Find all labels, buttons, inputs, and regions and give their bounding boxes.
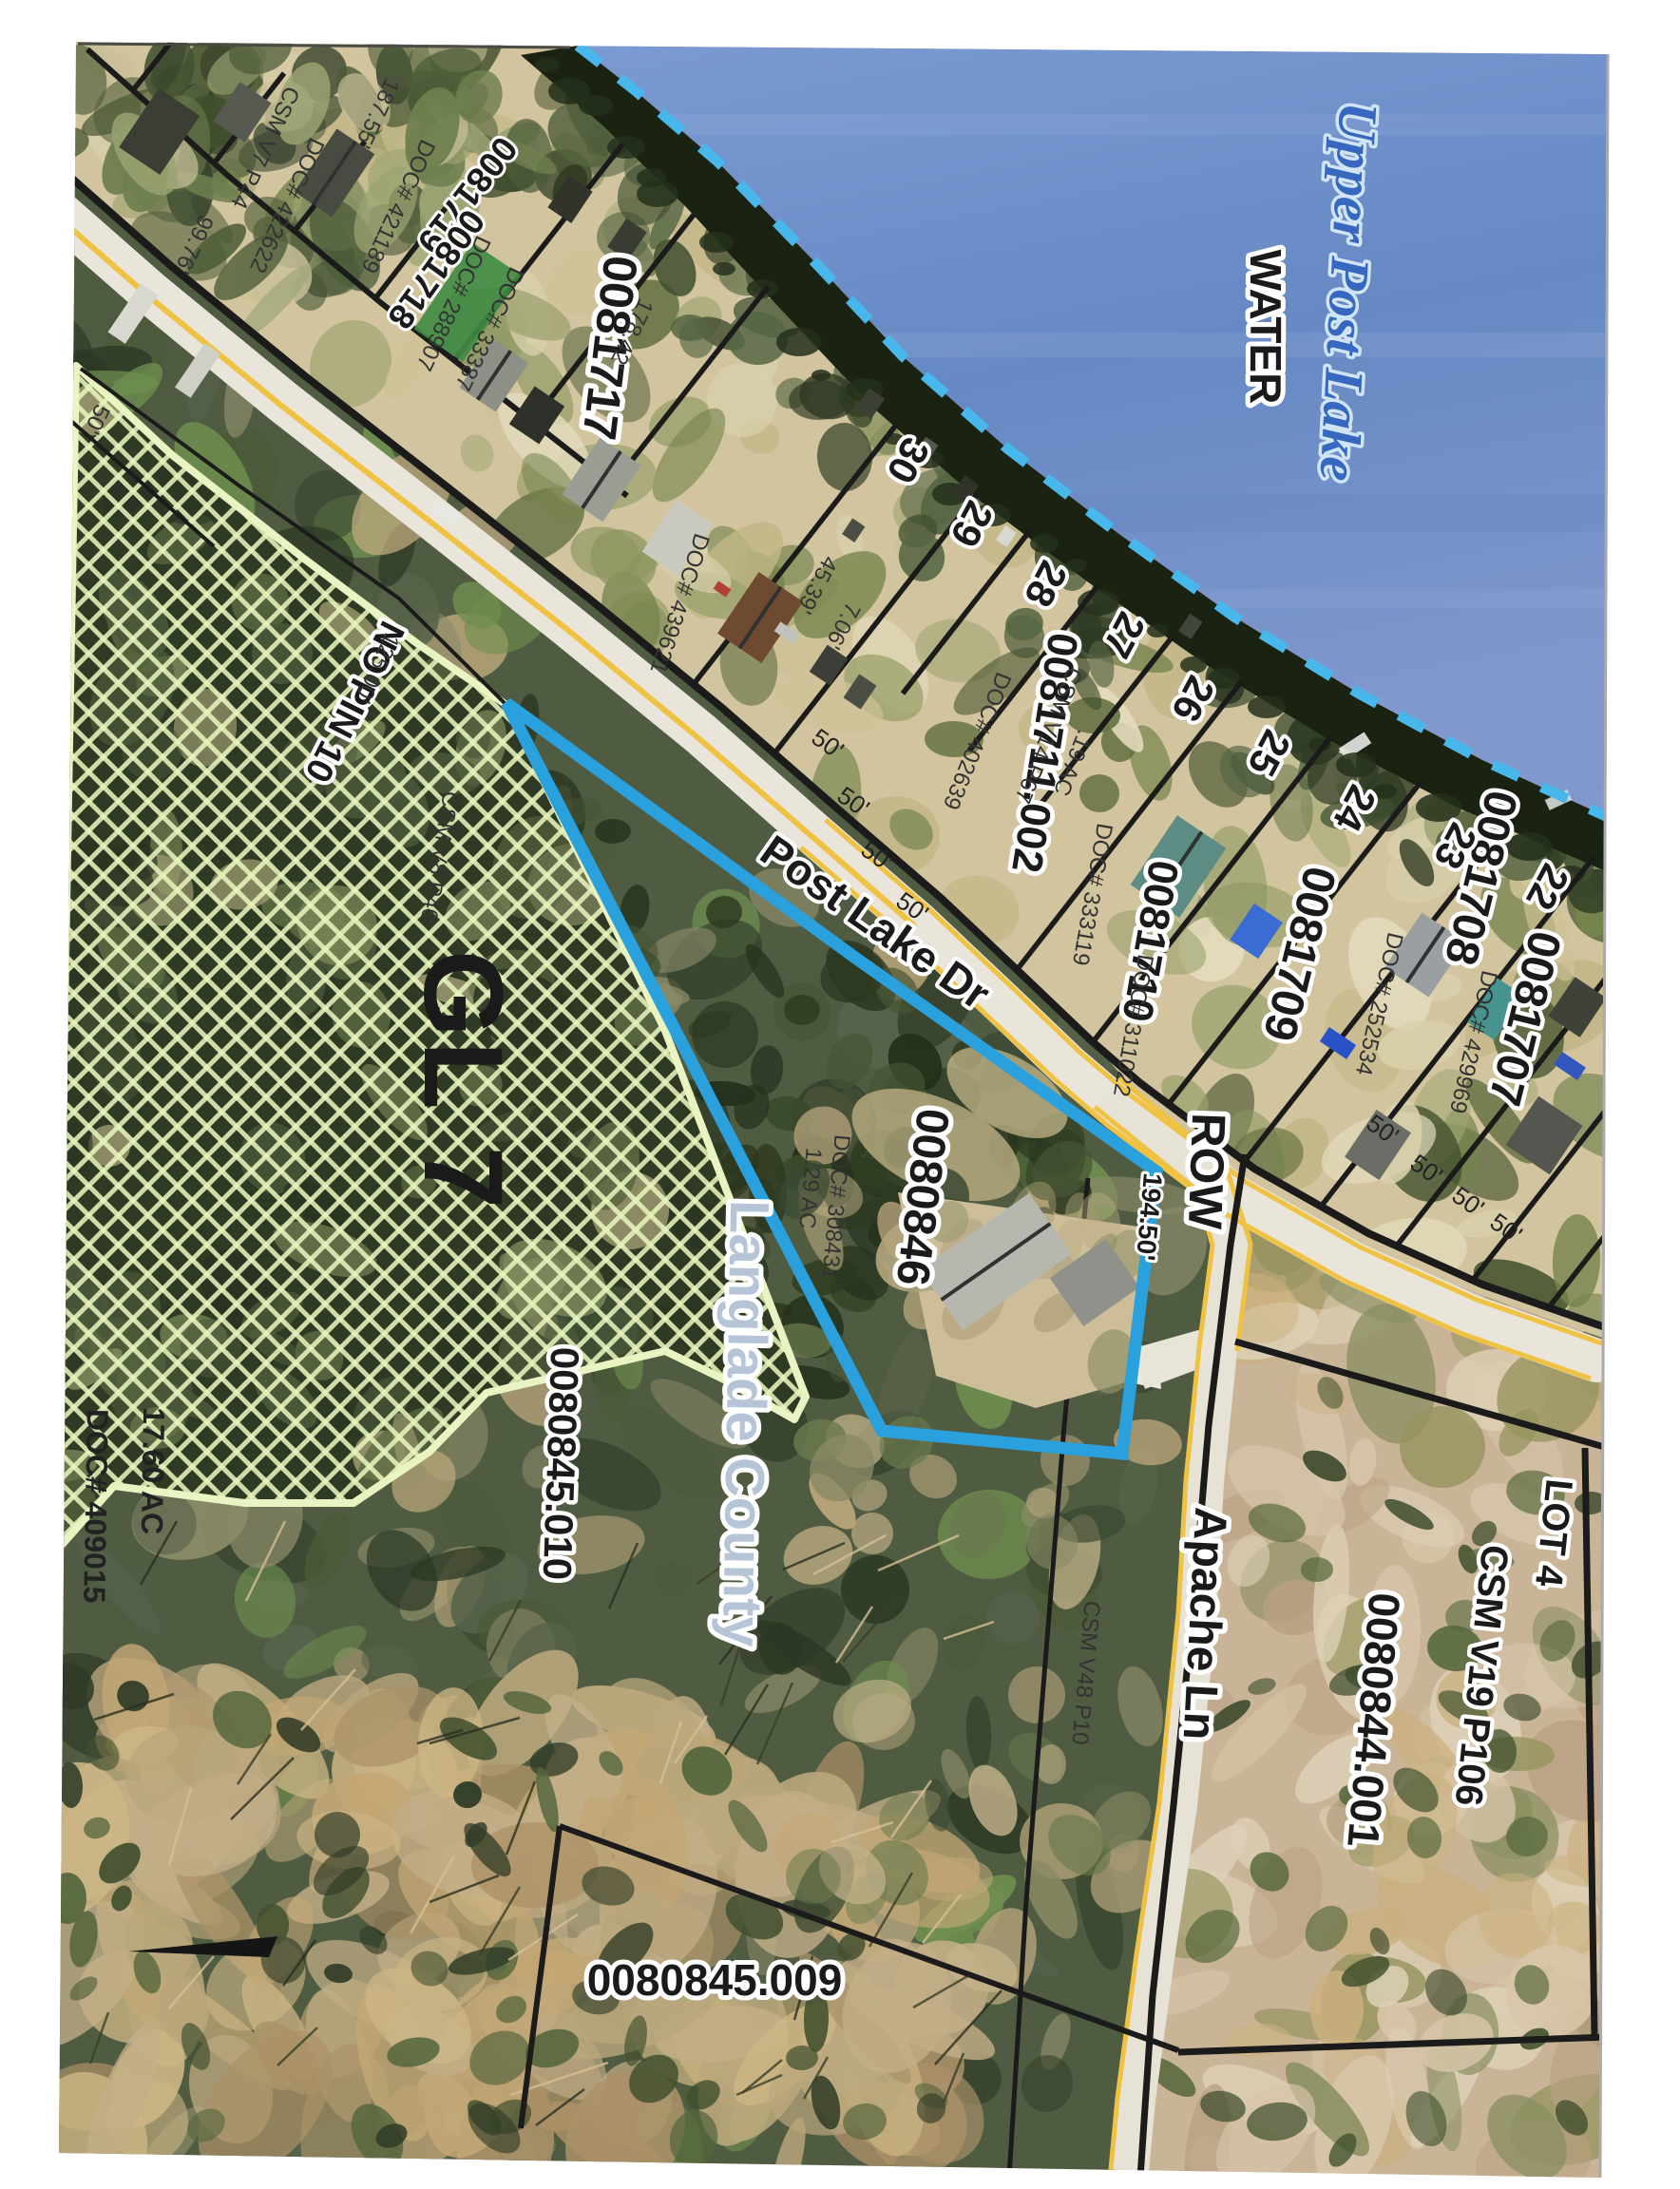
svg-text:DOC# 409015: DOC# 409015 xyxy=(77,1409,115,1604)
svg-text:ROW: ROW xyxy=(1178,1113,1235,1231)
svg-text:0080845.009: 0080845.009 xyxy=(587,1955,843,2005)
svg-text:17.60 AC: 17.60 AC xyxy=(135,1407,171,1535)
svg-text:GL 7: GL 7 xyxy=(400,950,525,1212)
svg-text:WATER: WATER xyxy=(1241,250,1290,405)
svg-text:0080845.010: 0080845.010 xyxy=(535,1346,588,1581)
svg-text:Langlade County: Langlade County xyxy=(711,1200,780,1648)
